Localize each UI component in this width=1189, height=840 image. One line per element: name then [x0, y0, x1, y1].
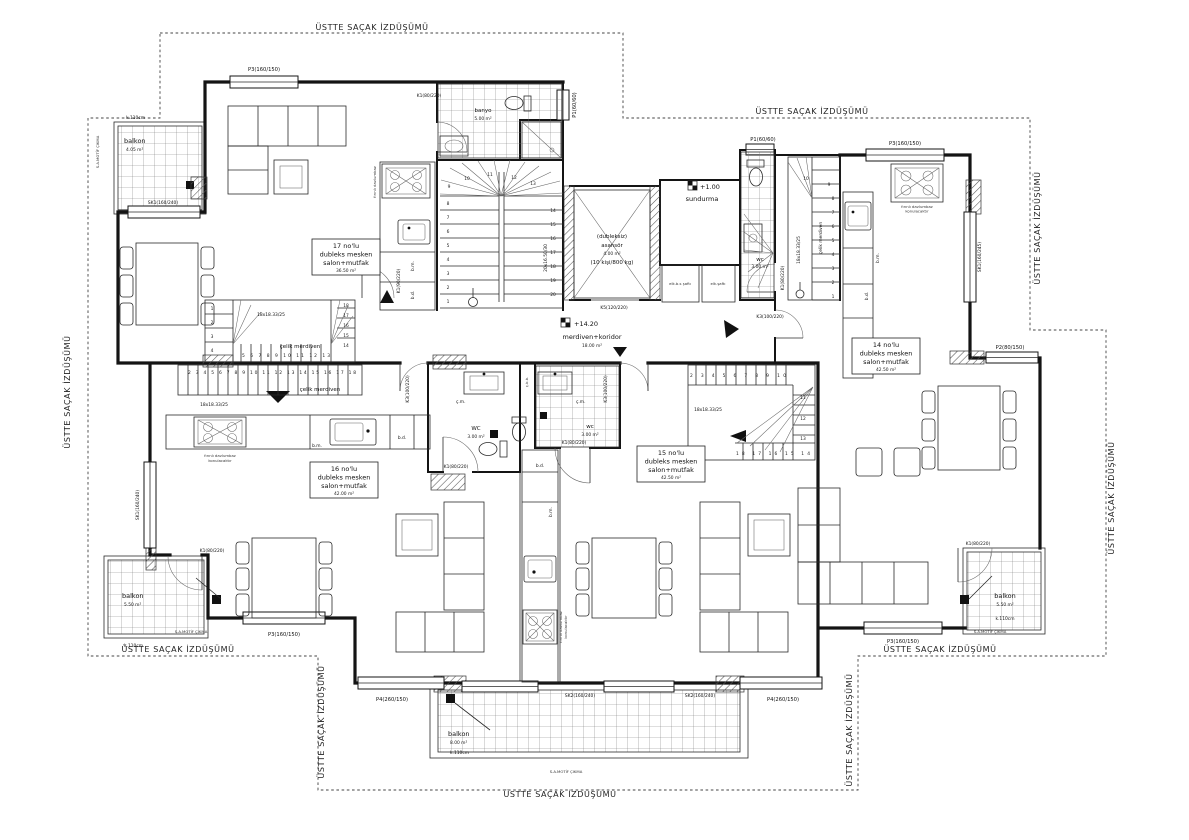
steel-stair-unit16: 2 3 4 5 6 7 8 9 10 11 12 13 14 15 16 17 … — [178, 365, 362, 408]
door-k3-unit14: K3(100/220) — [756, 310, 803, 338]
balcony-area: 5.50 m² — [124, 602, 141, 608]
svg-text:dubleks mesken: dubleks mesken — [860, 350, 913, 358]
svg-text:42.00 m²: 42.00 m² — [334, 491, 354, 497]
room-label-unit14: 14 no'lu dubleks mesken salon+mutfak 42.… — [852, 338, 920, 374]
stair-label: çelik merdiven — [280, 344, 321, 350]
svg-text:K1(80/220): K1(80/220) — [444, 464, 469, 470]
wc-area: 3.00 m² — [581, 432, 598, 438]
svg-text:1: 1 — [832, 294, 835, 300]
svg-text:8: 8 — [447, 201, 450, 207]
svg-text:9: 9 — [828, 182, 831, 188]
room-label-unit16: 16 no'lu dubleks mesken salon+mutfak 42.… — [310, 462, 378, 498]
parapet-height-label: k.110cm — [995, 616, 1014, 622]
sundurma: +1.00 sundurma — [686, 181, 720, 203]
level-symbol — [561, 318, 570, 327]
hood-note-2: konulacaktır — [208, 458, 232, 463]
svg-text:1: 1 — [447, 299, 450, 305]
svg-text:P3(160/150): P3(160/150) — [887, 639, 919, 645]
svg-text:9: 9 — [448, 184, 451, 190]
svg-text:11: 11 — [487, 172, 493, 178]
svg-text:8: 8 — [832, 196, 835, 202]
eaves-label-bottom: ÜSTTE SAÇAK İZDÜŞÜMÜ — [503, 789, 616, 799]
bd-label: b.d. — [536, 463, 544, 469]
svg-text:12: 12 — [800, 416, 806, 422]
svg-text:salon+mutfak: salon+mutfak — [321, 482, 367, 490]
dining-table-unit14 — [922, 386, 1016, 470]
window-p3-bottom-right: P3(160/150) — [864, 622, 942, 645]
wc-top: wc 3.00 m² — [741, 152, 774, 298]
stove — [523, 610, 557, 644]
svg-text:P3(160/150): P3(160/150) — [248, 67, 280, 73]
motif-label: S.A.MOTİF ÇIKMA — [974, 629, 1007, 634]
svg-text:12: 12 — [511, 175, 517, 181]
svg-text:14 no'lu: 14 no'lu — [873, 341, 899, 349]
corridor-level: +14.20 — [574, 320, 598, 328]
svg-text:13: 13 — [530, 181, 536, 187]
svg-text:P4(260/150): P4(260/150) — [767, 697, 799, 703]
eaves-label-right-upper: ÜSTTE SAÇAK İZDÜŞÜMÜ — [1032, 171, 1042, 284]
eaves-label-bottom-right-vertical: ÜSTTE SAÇAK İZDÜŞÜMÜ — [844, 673, 854, 786]
elevator: (dubleksiz) asansör 4.00 m² (10 kişi/800… — [574, 190, 650, 298]
balcony-area: 4.05 m² — [126, 147, 143, 153]
bm-label: b.m. — [410, 261, 416, 271]
svg-text:K3(100/220): K3(100/220) — [405, 375, 411, 403]
bd-label: b.d. — [410, 291, 416, 299]
svg-text:3: 3 — [211, 334, 214, 340]
svg-text:P3(160/150): P3(160/150) — [268, 632, 300, 638]
stair-spec: 18x18.33/25 — [796, 236, 802, 264]
svg-text:P3(160/150): P3(160/150) — [889, 141, 921, 147]
bm-label: b.m. — [875, 253, 881, 263]
svg-text:P1(60/60): P1(60/60) — [750, 137, 775, 143]
sink — [524, 556, 556, 582]
window-sk1-left-lower: SK1(160/240) — [135, 462, 156, 548]
eaves-label-left: ÜSTTE SAÇAK İZDÜŞÜMÜ — [62, 335, 72, 448]
window-sk1-right: SK1(160/245) — [964, 212, 983, 302]
banyo-name: banyo — [475, 108, 493, 114]
svg-text:5 6 7 8 9 10 11 12 13: 5 6 7 8 9 10 11 12 13 — [242, 353, 330, 359]
svg-text:K1(80/220): K1(80/220) — [780, 265, 786, 290]
svg-text:SK2(160/240): SK2(160/240) — [565, 693, 595, 699]
window-p4-left: P4(260/150) — [358, 677, 444, 703]
svg-text:K1(90/220): K1(90/220) — [396, 268, 402, 293]
room-label-unit17: 17 no'lu dubleks mesken salon+mutfak 36.… — [312, 239, 380, 275]
eaves-label-bottom-left-vertical: ÜSTTE SAÇAK İZDÜŞÜMÜ — [316, 665, 326, 778]
balcony-top-left: k.110cm balkon 4.05 m² S.A.MOTİF ÇIKMA — [95, 115, 206, 214]
steel-stair-unit15: 2 3 4 5 6 7 8 9 10 11 12 13 18 17 16 15 … — [688, 365, 815, 460]
svg-text:17: 17 — [550, 250, 556, 256]
window-p2: P2(80/150) — [986, 345, 1038, 363]
svg-text:salon+mutfak: salon+mutfak — [648, 466, 694, 474]
wc-name: WC — [471, 426, 480, 432]
dining-table-unit16 — [236, 538, 332, 618]
floor-plan: ÜSTTE SAÇAK İZDÜŞÜMÜ ÜSTTE SAÇAK İZDÜŞÜM… — [0, 0, 1189, 840]
svg-text:2: 2 — [832, 280, 835, 286]
shafts: elk.b.s şaftı elk.şaftı — [662, 265, 735, 302]
svg-text:13: 13 — [800, 436, 806, 442]
svg-text:SK2(160/240): SK2(160/240) — [685, 693, 715, 699]
steel-stair-unit14: 1 2 3 4 5 6 7 8 9 10 çelik merdiven 18x1… — [788, 157, 840, 300]
svg-text:18: 18 — [343, 303, 349, 309]
svg-text:2 3 4 5 6 7 8 9 10: 2 3 4 5 6 7 8 9 10 — [690, 373, 786, 379]
cm-label: ç.m. — [456, 400, 465, 405]
corridor-name: merdiven+koridor — [563, 333, 622, 341]
svg-text:4: 4 — [832, 252, 835, 258]
door-k3-unit16: K3(100/220) — [400, 363, 428, 403]
eaves-label-top-right: ÜSTTE SAÇAK İZDÜŞÜMÜ — [755, 106, 868, 116]
balcony-area: 8.00 m² — [450, 740, 467, 746]
svg-text:10: 10 — [803, 176, 809, 182]
balcony-label: balkon — [124, 137, 146, 145]
motif-label: S.A.MOTİF ÇIKMA — [95, 135, 100, 168]
svg-text:19: 19 — [550, 278, 556, 284]
svg-text:15: 15 — [343, 333, 349, 339]
parapet-height-label: k.110cm — [450, 750, 469, 756]
parapet-height-label: k.110cm — [126, 115, 145, 121]
cm-label: ç.m. — [576, 400, 585, 405]
svg-text:SK1(160/240): SK1(160/240) — [135, 490, 141, 520]
wc-left: ç.m. WC 3.00 m² — [456, 372, 507, 457]
sink — [398, 220, 430, 244]
stair-label: çelik merdiven — [818, 222, 824, 255]
stair-label: çelik merdiven — [300, 387, 341, 393]
vanity-sink — [464, 372, 504, 394]
svg-text:5: 5 — [447, 243, 450, 249]
stair-spec: 18x18.33/25 — [694, 407, 722, 413]
svg-text:10: 10 — [464, 176, 470, 182]
cbb-label: ç.b.b. — [524, 377, 529, 388]
bd-label: b.d. — [864, 292, 870, 300]
svg-text:11: 11 — [800, 395, 806, 401]
door-k5-elevator: K5(120/220) — [590, 300, 640, 311]
window-p3-top-right: P3(160/150) — [866, 141, 944, 161]
kitchen-unit15: b.d. b.m. fırınlı davlumbaz konulacaktır — [522, 450, 568, 682]
hood-note-2: konulacaktır — [563, 615, 568, 639]
sink — [330, 419, 376, 445]
svg-text:K3(100/220): K3(100/220) — [756, 314, 784, 320]
balcony-bottom-left: balkon 5.50 m² k.110cm S.A.MOTİF ÇIKMA — [104, 556, 221, 649]
svg-text:SK1(160/240): SK1(160/240) — [148, 200, 178, 206]
svg-text:20: 20 — [550, 292, 556, 298]
svg-text:16: 16 — [550, 236, 556, 242]
banyo-area: 5.00 m² — [474, 116, 491, 122]
svg-text:salon+mutfak: salon+mutfak — [323, 259, 369, 267]
svg-text:18: 18 — [550, 264, 556, 270]
kitchen-unit16: b.m. b.d. fırınlı davlumbaz konulacaktır — [166, 415, 430, 463]
svg-text:17 no'lu: 17 no'lu — [333, 242, 359, 250]
motif-label: S.A.MOTİF ÇIKMA — [175, 629, 208, 634]
banyo: banyo 5.00 m² — [438, 84, 562, 158]
stove — [194, 417, 246, 447]
bm-label: b.m. — [548, 507, 554, 517]
bd-label: b.d. — [398, 435, 406, 441]
svg-text:3: 3 — [447, 271, 450, 277]
window-p3-top-left: P3(160/150) — [230, 67, 298, 88]
svg-text:SK1(160/245): SK1(160/245) — [977, 242, 983, 272]
balcony-bottom-right: balkon 5.50 m² k.110cm S.A.MOTİF ÇIKMA — [960, 548, 1045, 634]
room-label-unit15: 15 no'lu dubleks mesken salon+mutfak 42.… — [637, 446, 705, 482]
door-wc-left: K1(80/220) — [443, 437, 478, 472]
elevator-capacity: (10 kişi/800 kg) — [591, 260, 634, 266]
eaves-label-bottom-right: ÜSTTE SAÇAK İZDÜŞÜMÜ — [883, 644, 996, 654]
elevator-note: (dubleksiz) — [597, 234, 627, 240]
stove — [382, 164, 430, 198]
wc-name: wc — [586, 424, 594, 430]
shaft-b-label: elk.şaftı — [711, 281, 726, 286]
wc-area: 3.00 m² — [467, 434, 484, 440]
hood-note-2: konulacaktır — [905, 209, 929, 214]
svg-text:K5(120/220): K5(120/220) — [600, 305, 628, 311]
dining-table-unit17 — [120, 243, 214, 325]
svg-text:42.50 m²: 42.50 m² — [661, 475, 681, 481]
stair-spec: 18x18.33/25 — [200, 402, 228, 408]
wc-area: 3.00 m² — [751, 264, 768, 270]
eaves-label-top: ÜSTTE SAÇAK İZDÜŞÜMÜ — [315, 22, 428, 32]
steel-stair-unit17: 1 2 3 4 5 6 7 8 9 10 11 12 13 18 17 16 1… — [205, 300, 355, 362]
svg-text:3: 3 — [832, 266, 835, 272]
sink — [845, 202, 871, 230]
sofa-unit15 — [700, 502, 790, 652]
svg-text:1: 1 — [211, 306, 214, 312]
svg-text:16 no'lu: 16 no'lu — [331, 465, 357, 473]
hood-note: fırınlı davlumbaz — [372, 166, 377, 198]
svg-text:16: 16 — [343, 323, 349, 329]
svg-text:15: 15 — [550, 222, 556, 228]
floor-plan-drawing: ÜSTTE SAÇAK İZDÜŞÜMÜ ÜSTTE SAÇAK İZDÜŞÜM… — [0, 0, 1189, 840]
wc-right: ç.m. wc 3.00 m² ç.b.b. — [512, 366, 619, 447]
svg-text:dubleks mesken: dubleks mesken — [320, 251, 373, 259]
balcony-label: balkon — [122, 592, 144, 600]
main-stair: 1 2 3 4 5 6 7 8 9 10 11 12 13 14 15 16 1… — [440, 160, 563, 307]
eaves-label-right-lower: ÜSTTE SAÇAK İZDÜŞÜMÜ — [1106, 441, 1116, 554]
svg-text:salon+mutfak: salon+mutfak — [863, 358, 909, 366]
svg-text:6: 6 — [447, 229, 450, 235]
sundurma-name: sundurma — [686, 195, 719, 203]
sundurma-level: +1.00 — [700, 183, 720, 191]
balcony-area: 5.50 m² — [996, 602, 1013, 608]
svg-text:17: 17 — [343, 313, 349, 319]
shaft-a-label: elk.b.s şaftı — [669, 281, 691, 286]
main-stair-spec: 20x16.50/30 — [543, 244, 549, 272]
svg-text:4: 4 — [447, 257, 450, 263]
svg-text:K1(80/220): K1(80/220) — [966, 541, 991, 547]
svg-text:6: 6 — [832, 224, 835, 230]
stair-spec: 18x18.33/25 — [257, 312, 285, 318]
svg-text:7: 7 — [832, 210, 835, 216]
svg-text:14: 14 — [550, 208, 556, 214]
svg-text:K1(80/220): K1(80/220) — [200, 548, 225, 554]
svg-text:42.50 m²: 42.50 m² — [876, 367, 896, 373]
elevator-area: 4.00 m² — [603, 251, 620, 257]
balcony-label: balkon — [994, 592, 1016, 600]
svg-text:dubleks mesken: dubleks mesken — [318, 474, 371, 482]
svg-text:14: 14 — [343, 343, 349, 349]
svg-text:P2(80/150): P2(80/150) — [996, 345, 1025, 351]
sofa-unit16 — [396, 502, 484, 652]
corridor-area: 18.00 m² — [582, 343, 602, 349]
svg-text:7: 7 — [447, 215, 450, 221]
level-symbol — [688, 181, 697, 190]
window-p4-right: P4(260/150) — [740, 677, 822, 703]
parapet-height-label: k.110cm — [124, 643, 143, 649]
sofa-unit17 — [228, 106, 346, 194]
kitchen-unit17: b.m. b.d. fırınlı davlumbaz — [372, 162, 435, 310]
stove — [891, 164, 943, 202]
toilet — [479, 441, 507, 457]
svg-text:dubleks mesken: dubleks mesken — [645, 458, 698, 466]
svg-text:P1(60/60): P1(60/60) — [572, 92, 578, 117]
dining-table-unit15 — [576, 538, 672, 618]
svg-text:2: 2 — [447, 285, 450, 291]
wc-name: wc — [756, 257, 764, 263]
svg-text:5: 5 — [832, 238, 835, 244]
balcony-label: balkon — [448, 730, 470, 738]
svg-text:2 3 4 5 6 7 8 9 10 11 12 13 14: 2 3 4 5 6 7 8 9 10 11 12 13 14 15 16 17 … — [188, 370, 356, 376]
motif-label: S.A.MOTİF ÇIKMA — [550, 769, 583, 774]
bm-label: b.m. — [312, 443, 322, 449]
svg-text:4: 4 — [211, 348, 214, 354]
svg-text:36.50 m²: 36.50 m² — [336, 268, 356, 274]
elevator-name: asansör — [601, 243, 623, 249]
svg-text:15 no'lu: 15 no'lu — [658, 449, 684, 457]
window-p3-bottom-left: P3(160/150) — [243, 612, 325, 638]
svg-text:P4(260/150): P4(260/150) — [376, 697, 408, 703]
